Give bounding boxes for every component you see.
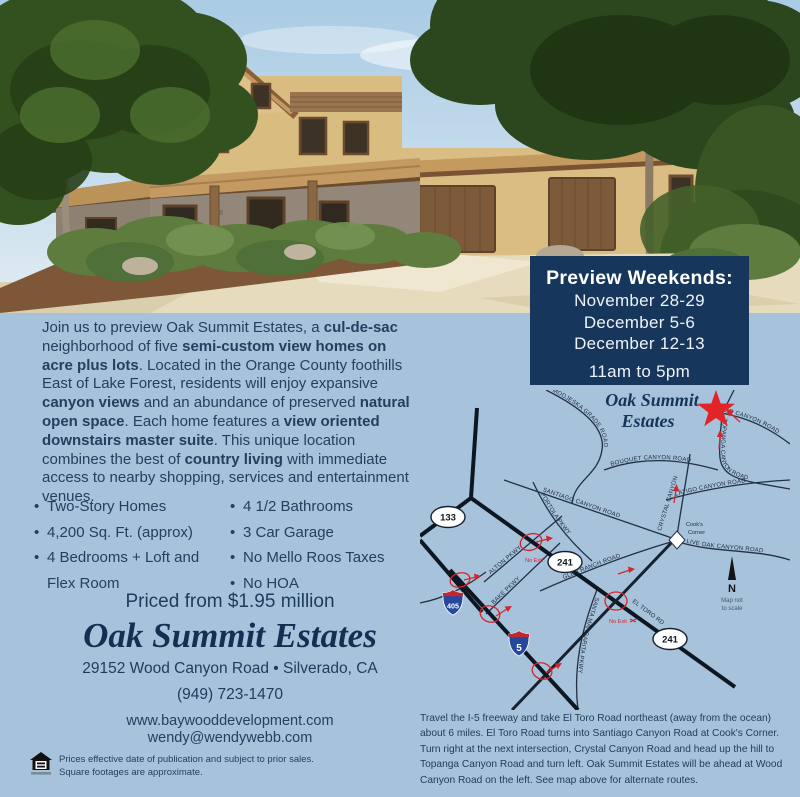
road-label-modjeska: MODJESKA GRADE ROAD xyxy=(551,390,608,448)
shield-133: 133 xyxy=(431,507,465,528)
svg-text:MODJESKA GRADE ROAD: MODJESKA GRADE ROAD xyxy=(551,390,608,448)
svg-text:LIVE OAK CANYON ROAD: LIVE OAK CANYON ROAD xyxy=(686,539,764,555)
flyer-page: Preview Weekends: November 28-29 Decembe… xyxy=(0,0,800,797)
feature-item: No Mello Roos Taxes xyxy=(230,545,420,571)
road-label-bake: BAKE PKWY xyxy=(491,576,522,606)
scale-note: to scale xyxy=(722,606,743,612)
shield-i405: 405 xyxy=(443,590,463,615)
feature-item: 4 Bedrooms + Loft and Flex Room xyxy=(34,545,230,596)
preview-hours: 11am to 5pm xyxy=(530,362,749,382)
compass-north-icon: N Map not to scale xyxy=(721,556,743,612)
disclaimer-line-1: Prices effective date of publication and… xyxy=(59,754,314,767)
features-lists: Two-Story Homes 4,200 Sq. Ft. (approx) 4… xyxy=(34,494,434,596)
feature-item: 3 Car Garage xyxy=(230,520,420,546)
address-line: 29152 Wood Canyon Road • Silverado, CA xyxy=(30,660,430,678)
no-exit-label: No Exit xyxy=(525,558,543,564)
svg-text:241: 241 xyxy=(662,635,679,646)
feature-item: 4,200 Sq. Ft. (approx) xyxy=(34,520,230,546)
area-map: MODJESKA GRADE ROAD WOOD CANYON ROAD TOP… xyxy=(420,390,790,710)
contact-links: www.baywooddevelopment.com wendy@wendywe… xyxy=(30,713,430,746)
disclaimer-line-2: Square footages are approximate. xyxy=(59,767,314,780)
disclaimer: Prices effective date of publication and… xyxy=(30,752,314,779)
oak-star-icon xyxy=(697,390,735,426)
preview-date: December 12-13 xyxy=(530,333,749,355)
email-link[interactable]: wendy@wendywebb.com xyxy=(30,730,430,747)
scale-note: Map not xyxy=(721,598,743,604)
preview-date: December 5-6 xyxy=(530,312,749,334)
svg-text:SANTA MARGARITA PKWY: SANTA MARGARITA PKWY xyxy=(576,596,599,673)
website-link[interactable]: www.baywooddevelopment.com xyxy=(30,713,430,730)
svg-text:N: N xyxy=(728,583,736,595)
features-list-left: Two-Story Homes 4,200 Sq. Ft. (approx) 4… xyxy=(34,494,230,596)
equal-housing-icon xyxy=(30,752,52,777)
svg-text:TOPANGA CANYON ROAD: TOPANGA CANYON ROAD xyxy=(719,418,749,482)
price-line: Priced from $1.95 million xyxy=(30,591,430,613)
map-title-line-1: Oak Summit xyxy=(605,390,700,410)
estates-title: Oak Summit Estates xyxy=(30,616,430,656)
preview-title: Preview Weekends: xyxy=(530,267,749,290)
preview-panel: Preview Weekends: November 28-29 Decembe… xyxy=(530,256,749,385)
shield-241: 241 xyxy=(548,552,582,573)
shield-241: 241 xyxy=(653,629,687,650)
road-label-santa-margarita: SANTA MARGARITA PKWY xyxy=(576,596,599,673)
svg-text:241: 241 xyxy=(557,558,574,569)
intro-paragraph: Join us to preview Oak Summit Estates, a… xyxy=(42,319,418,507)
feature-item: 4 1/2 Bathrooms xyxy=(230,494,420,520)
svg-text:BAKE PKWY: BAKE PKWY xyxy=(491,576,522,606)
map-road-labels: MODJESKA GRADE ROAD WOOD CANYON ROAD TOP… xyxy=(488,390,780,674)
map-title-line-2: Estates xyxy=(620,411,674,431)
svg-text:Cook's: Cook's xyxy=(686,522,703,528)
no-exit-label: No Exit xyxy=(609,619,627,625)
features-list-right: 4 1/2 Bathrooms 3 Car Garage No Mello Ro… xyxy=(230,494,420,596)
road-label-topanga: TOPANGA CANYON ROAD xyxy=(719,418,749,482)
directions-text: Travel the I-5 freeway and take El Toro … xyxy=(420,711,794,788)
phone-line: (949) 723-1470 xyxy=(30,686,430,704)
feature-item: Two-Story Homes xyxy=(34,494,230,520)
svg-text:Corner: Corner xyxy=(688,530,705,536)
svg-text:5: 5 xyxy=(516,643,522,654)
svg-text:405: 405 xyxy=(447,602,459,611)
road-label-alton: ALTON PKWY xyxy=(488,545,523,576)
road-label-crystal: CRYSTAL CANYON xyxy=(657,475,679,531)
road-label-live-oak: LIVE OAK CANYON ROAD xyxy=(686,539,764,555)
svg-text:ALTON PKWY: ALTON PKWY xyxy=(488,545,523,576)
preview-date: November 28-29 xyxy=(530,290,749,312)
svg-text:133: 133 xyxy=(440,513,456,524)
